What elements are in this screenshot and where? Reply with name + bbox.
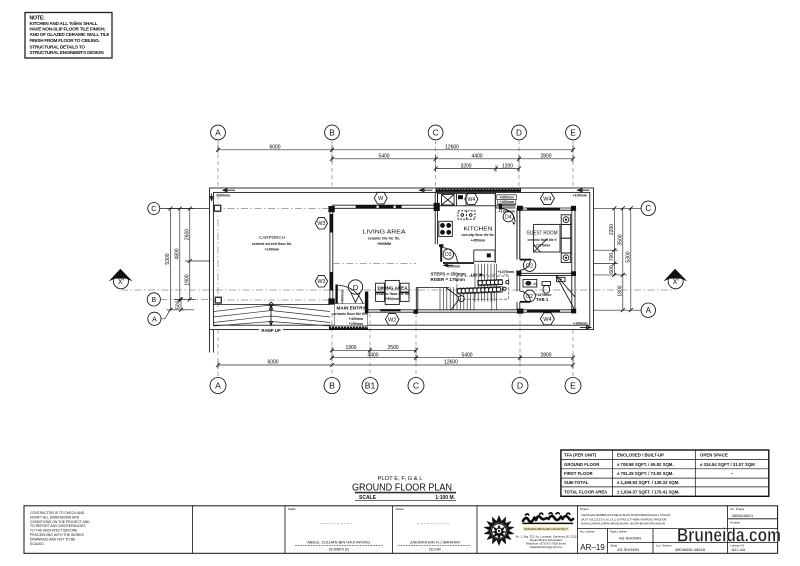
svg-text:STEPS = 250mm: STEPS = 250mm xyxy=(431,271,466,276)
svg-text:5300: 5300 xyxy=(625,251,631,262)
svg-text:6000: 6000 xyxy=(267,360,278,366)
svg-text:HAVE NON-SLIP FLOOR TILE FINIS: HAVE NON-SLIP FLOOR TILE FINISH; xyxy=(30,27,106,32)
svg-text:Negara Brunei Darussalam: Negara Brunei Darussalam xyxy=(530,538,563,542)
svg-text:W4: W4 xyxy=(543,196,551,202)
svg-text:+1375mm: +1375mm xyxy=(498,270,514,274)
svg-text:CARPORCH: CARPORCH xyxy=(259,235,285,241)
svg-text:48046/BD 48618: 48046/BD 48618 xyxy=(675,547,706,552)
svg-text:4800: 4800 xyxy=(174,248,180,259)
svg-text:AS SHOWN: AS SHOWN xyxy=(617,547,639,552)
svg-text:CONDITIONS ON THE PROJECT AND: CONDITIONS ON THE PROJECT AND xyxy=(30,520,90,524)
svg-text:2800: 2800 xyxy=(540,352,551,358)
svg-text:AR–19: AR–19 xyxy=(580,543,605,552)
svg-text:STRUCTURAL DETAILS TO: STRUCTURAL DETAILS TO xyxy=(30,45,86,50)
svg-text:SUB-TOTAL: SUB-TOTAL xyxy=(564,480,589,485)
svg-text:ENCLOSED / BUILT-UP: ENCLOSED / BUILT-UP xyxy=(617,453,664,458)
svg-text:1900: 1900 xyxy=(345,345,356,351)
svg-text:+500MM: +500MM xyxy=(377,242,391,246)
svg-text:1800: 1800 xyxy=(617,285,623,296)
svg-text:+400mm: +400mm xyxy=(500,200,515,204)
svg-text:GROUND FLOOR: GROUND FLOOR xyxy=(564,462,600,467)
svg-text:± 791.25 SQFT. / 73.50 SQ: ± 791.25 SQFT. / 73.50 SQM. xyxy=(617,471,674,476)
svg-text:5400: 5400 xyxy=(378,154,389,160)
svg-text:01214AI: 01214AI xyxy=(429,547,441,551)
svg-text:3500: 3500 xyxy=(617,234,623,245)
svg-text:ceramic floor tile fin.: ceramic floor tile fin. xyxy=(332,312,367,316)
svg-text:STRUCTURAL ENGINEER'S DESIGN: STRUCTURAL ENGINEER'S DESIGN xyxy=(30,50,105,55)
svg-text:+100mm: +100mm xyxy=(573,194,588,198)
svg-text:OPEN SPACE: OPEN SPACE xyxy=(700,453,728,458)
svg-text:18-089879 (K): 18-089879 (K) xyxy=(329,547,349,551)
svg-text:ABDUL ZULHAN BIN HAJI APONG: ABDUL ZULHAN BIN HAJI APONG xyxy=(307,540,370,545)
svg-text:4400: 4400 xyxy=(471,154,482,160)
svg-text:X': X' xyxy=(673,279,679,286)
svg-text:Majlis:: Majlis: xyxy=(288,507,297,511)
svg-text:± 708.58 SQFT. / 65.82 SQ: ± 708.58 SQFT. / 65.82 SQM. xyxy=(617,462,674,467)
svg-text:500: 500 xyxy=(176,300,182,309)
svg-text:TOTAL FLOOR AREA: TOTAL FLOOR AREA xyxy=(564,489,607,494)
svg-text:Bruneida.com: Bruneida.com xyxy=(677,526,781,547)
svg-text:No. Lukisan: No. Lukisan xyxy=(580,529,595,533)
svg-text:Akitek:: Akitek: xyxy=(396,507,405,511)
svg-text:ceramic floor tile fi: ceramic floor tile fi xyxy=(528,238,557,242)
svg-text:W3: W3 xyxy=(317,221,325,227)
svg-text:VERIFY ALL DIMENSIONS AND: VERIFY ALL DIMENSIONS AND xyxy=(30,515,80,519)
svg-text:2200: 2200 xyxy=(609,224,615,235)
svg-text:C: C xyxy=(413,381,419,391)
svg-text:+400mm: +400mm xyxy=(349,317,364,321)
svg-text:GUEST ROOM: GUEST ROOM xyxy=(527,231,558,237)
svg-text:Lot / Seksen: Lot / Seksen xyxy=(656,543,672,547)
svg-text:C: C xyxy=(433,128,439,137)
svg-text:6000: 6000 xyxy=(269,145,280,151)
svg-text:+200mm: +200mm xyxy=(499,196,514,200)
svg-text:+100mm: +100mm xyxy=(573,321,588,325)
svg-text:+1375mm: +1375mm xyxy=(534,243,550,247)
svg-text:D: D xyxy=(516,128,522,137)
svg-text:UP: UP xyxy=(471,273,477,278)
svg-text:+400mm: +400mm xyxy=(341,290,345,304)
svg-text:DINING AREA: DINING AREA xyxy=(378,285,409,290)
svg-text:W4: W4 xyxy=(468,197,476,203)
svg-text:CONTRACTOR IS TO CHECK AND: CONTRACTOR IS TO CHECK AND xyxy=(30,511,85,515)
svg-text:1200: 1200 xyxy=(502,163,513,169)
svg-text:48046/ABCI: 48046/ABCI xyxy=(732,513,754,518)
svg-text:+100mm: +100mm xyxy=(265,248,280,252)
svg-text:B: B xyxy=(329,128,335,137)
svg-text:A: A xyxy=(215,128,221,137)
svg-text:AZI–AA: AZI–AA xyxy=(732,547,746,552)
svg-text:ceramic floor tile fin.: ceramic floor tile fin. xyxy=(375,292,410,296)
svg-text:DRAWINGS ARE NOT TO BE: DRAWINGS ARE NOT TO BE xyxy=(30,537,76,541)
svg-text:AS SHOWN: AS SHOWN xyxy=(619,536,641,541)
svg-text:12600: 12600 xyxy=(445,145,459,151)
svg-text:2800: 2800 xyxy=(540,154,551,160)
svg-text:TO THE ARCHITECT BEFORE: TO THE ARCHITECT BEFORE xyxy=(30,529,78,533)
svg-text:4400: 4400 xyxy=(367,352,378,358)
svg-text:12600: 12600 xyxy=(444,360,458,366)
svg-text:FINISH FROM FLOOR TO CEILING.: FINISH FROM FLOOR TO CEILING. xyxy=(30,38,100,43)
svg-text:TAB 1: TAB 1 xyxy=(536,297,549,302)
svg-text:600: 600 xyxy=(609,265,615,274)
svg-text:WB: WB xyxy=(533,282,537,286)
svg-text:A: A xyxy=(152,316,157,323)
svg-text:PROCEEDING WITH THE WORKS: PROCEEDING WITH THE WORKS xyxy=(30,533,85,537)
svg-text:FIRST FLOOR: FIRST FLOOR xyxy=(564,471,594,476)
svg-text:± 1,499.83 SQFT. / 139.33: ± 1,499.83 SQFT. / 139.33 SQM. xyxy=(617,480,680,485)
svg-text:Telephone: (673) 871-7928 E: Telephone: (673) 871-7928 Email: xyxy=(526,542,567,546)
svg-text:± 334.54 SQFT / 31.07 SQM: ± 334.54 SQFT / 31.07 SQM xyxy=(700,462,755,467)
svg-text:B1: B1 xyxy=(365,381,376,391)
svg-text:1900: 1900 xyxy=(184,274,190,285)
svg-text:ZAKARIA BIN H.J IBRAHIM: ZAKARIA BIN H.J IBRAHIM xyxy=(410,540,460,545)
svg-text:TFA (PER UNIT): TFA (PER UNIT) xyxy=(564,453,597,458)
svg-text:PLOT E, F, G & L: PLOT E, F, G & L xyxy=(378,476,423,482)
svg-text:D2: D2 xyxy=(526,263,533,269)
svg-text:3200: 3200 xyxy=(460,163,471,169)
svg-text:Projek: Projek xyxy=(580,507,589,511)
svg-text:E: E xyxy=(570,381,576,391)
svg-text:D3: D3 xyxy=(445,252,452,258)
svg-text:2500: 2500 xyxy=(387,345,398,351)
svg-text:RAMP UP: RAMP UP xyxy=(261,328,280,333)
svg-text:AND OF GLAZED CERAMIC WALL TIL: AND OF GLAZED CERAMIC WALL TILE xyxy=(30,32,110,37)
svg-text:cement screed floor fin.: cement screed floor fin. xyxy=(252,242,293,246)
svg-text:D4: D4 xyxy=(505,215,512,221)
svg-text:ZAKARIA IBRAHIM ARCHITECT: ZAKARIA IBRAHIM ARCHITECT xyxy=(524,527,568,531)
svg-text:KITCHEN: KITCHEN xyxy=(464,227,493,233)
svg-text:700: 700 xyxy=(609,253,615,262)
svg-text:W4: W4 xyxy=(543,317,551,323)
svg-text:ceramic tile fin. fin.: ceramic tile fin. fin. xyxy=(368,237,401,241)
svg-text:B: B xyxy=(151,297,156,304)
svg-text:Tajuk Lukisan: Tajuk Lukisan xyxy=(610,529,627,533)
svg-text:A: A xyxy=(646,306,652,315)
svg-text:SCALED.: SCALED. xyxy=(30,542,45,546)
svg-text:+500mm: +500mm xyxy=(385,297,400,301)
svg-text:KITCHEN AND ALL Toilets SHALL: KITCHEN AND ALL Toilets SHALL xyxy=(30,21,98,26)
svg-text:2600: 2600 xyxy=(184,229,190,240)
svg-text:W2: W2 xyxy=(388,317,396,323)
svg-text:W3: W3 xyxy=(317,279,325,285)
svg-text:No. 1, Spg. 322, Kg. Lumapas,: No. 1, Spg. 322, Kg. Lumapas, Gambong, B… xyxy=(515,535,577,539)
svg-text:non-slip floor tile fin.: non-slip floor tile fin. xyxy=(462,233,495,237)
svg-text:zakariaibrahim@gmail.com: zakariaibrahim@gmail.com xyxy=(530,545,563,549)
svg-text:C: C xyxy=(151,206,156,213)
svg-text:5400: 5400 xyxy=(461,352,472,358)
svg-text:D2: D2 xyxy=(526,294,533,300)
svg-text:LIVING AREA: LIVING AREA xyxy=(363,230,407,236)
svg-text:W: W xyxy=(378,196,384,202)
svg-text:MUKIM LUMAPAS,DAERAH BRUNEI MU: MUKIM LUMAPAS,DAERAH BRUNEI MUARA, NEGAR… xyxy=(581,522,665,526)
svg-text:RISER = 175mm: RISER = 175mm xyxy=(431,277,465,282)
svg-text:D: D xyxy=(353,283,358,292)
svg-text:B: B xyxy=(329,381,335,391)
svg-text:C: C xyxy=(645,204,651,213)
svg-text:A: A xyxy=(215,381,221,391)
svg-text:D: D xyxy=(517,381,523,391)
svg-text:5300: 5300 xyxy=(165,253,171,264)
svg-text:± 1,834.37 SQFT. / 170.41: ± 1,834.37 SQFT. / 170.41 SQM. xyxy=(617,489,680,494)
svg-text:X': X' xyxy=(118,279,124,286)
svg-text:+450mm: +450mm xyxy=(471,238,486,242)
svg-text:MAIN ENTRY: MAIN ENTRY xyxy=(337,306,366,311)
svg-text:E: E xyxy=(570,128,576,137)
svg-text:No. Projek: No. Projek xyxy=(730,507,745,511)
svg-text:TO REPORT ANY DISCREPANCIES: TO REPORT ANY DISCREPANCIES xyxy=(30,524,86,528)
svg-text:Huraian: Huraian xyxy=(730,521,740,525)
svg-text:+250mm: +250mm xyxy=(349,322,364,326)
